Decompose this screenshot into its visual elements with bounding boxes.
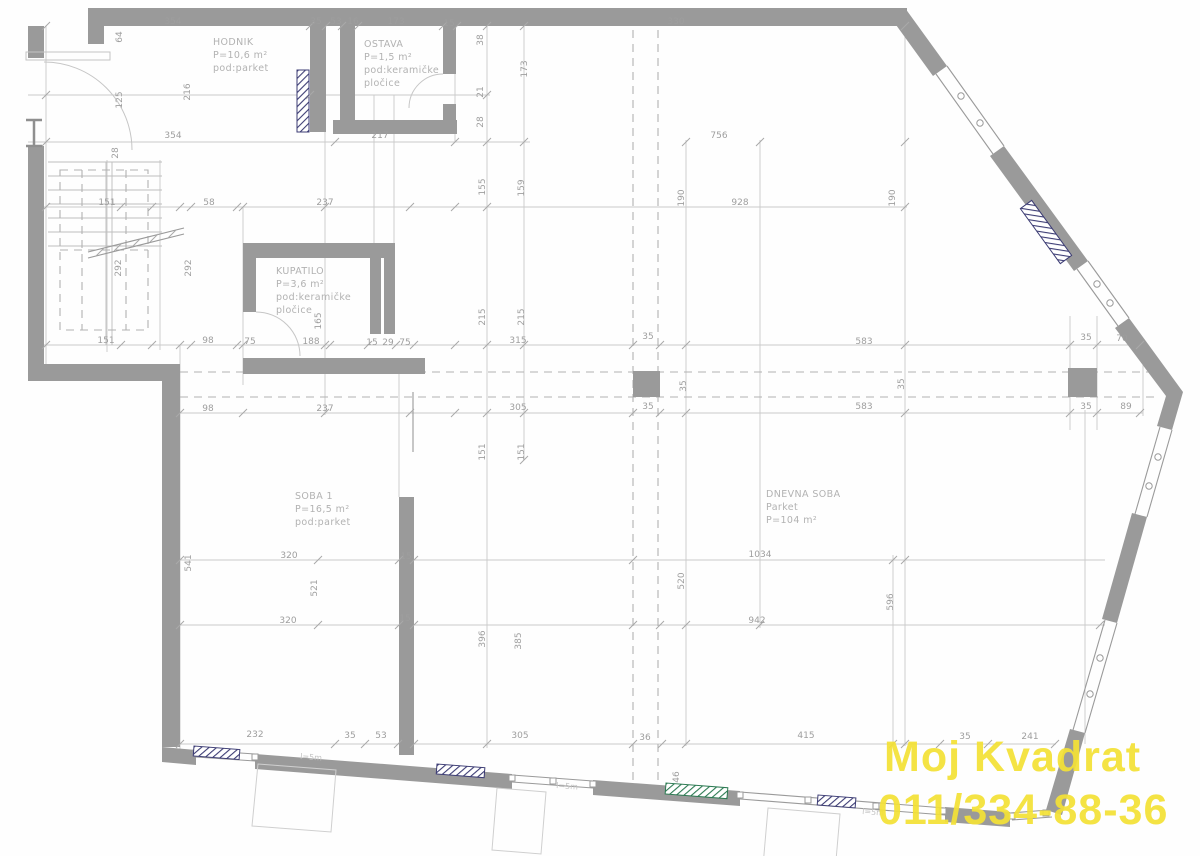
room-label-dnevna-soba: Parket [766, 502, 798, 513]
dimension-label: 58 [203, 198, 215, 208]
dimension-label: 165 [314, 312, 324, 329]
staircase [48, 162, 184, 345]
kupatilo-door-arc [256, 312, 300, 356]
dimension-label: 583 [855, 402, 872, 412]
dimension-label: 173 [520, 60, 530, 77]
dimension-label: 596 [886, 593, 896, 610]
ostava-door-arc [409, 74, 443, 108]
room-label-dnevna-soba: P=104 m² [766, 515, 817, 526]
dimension-label: 292 [114, 259, 124, 276]
dimension-label: 305 [511, 731, 528, 741]
dimension-ticks [42, 22, 1144, 748]
walls [28, 8, 1183, 827]
dimension-label: 188 [302, 337, 319, 347]
dimension-label: 98 [202, 404, 214, 414]
floor-plan: 3543553161731533064125216283542177563821… [0, 0, 1200, 856]
dimension-label: 241 [1021, 732, 1038, 742]
dimension-label: 232 [246, 730, 263, 740]
room-label-soba-1: SOBA 1 [295, 491, 333, 502]
dimension-label: 354 [164, 131, 181, 141]
dimension-label: 320 [279, 616, 296, 626]
room-label-ostava: pod:keramičke [364, 65, 439, 76]
dimension-label: 35 [1080, 333, 1091, 343]
dimension-label: 541 [184, 554, 194, 571]
room-label-ostava: P=1,5 m² [364, 52, 412, 63]
room-label-kupatilo: KUPATILO [276, 266, 324, 277]
window-handles [193, 93, 1161, 819]
extension-lines [28, 8, 1143, 756]
dimension-label: 64 [115, 31, 125, 43]
room-label-dnevna-soba: DNEVNA SOBA [766, 489, 841, 500]
dimension-label: 98 [202, 336, 214, 346]
dimension-label: 159 [517, 179, 527, 196]
room-label-hodnik: P=10,6 m² [213, 50, 268, 61]
dimension-label: 35 [1080, 402, 1091, 412]
dimension-label: 35 [642, 402, 653, 412]
dimension-label: 190 [677, 189, 687, 206]
dimension-label: 928 [731, 198, 748, 208]
dimension-label: 21 [476, 86, 486, 97]
dimension-label: 385 [514, 632, 524, 649]
dimension-label: 35 [959, 732, 970, 742]
room-label-hodnik: pod:parket [213, 63, 269, 74]
dimension-label: 415 [797, 731, 814, 741]
room-label-hodnik: HODNIK [213, 37, 254, 48]
dimension-label: 28 [476, 116, 486, 128]
dimension-label: 583 [855, 337, 872, 347]
dimension-label: 29 [382, 338, 394, 348]
dimension-label: 35 [642, 332, 653, 342]
room-label-kupatilo: P=3,6 m² [276, 279, 324, 290]
dimension-label: 396 [478, 630, 488, 647]
room-label-ostava: pločice [364, 78, 400, 89]
room-label-ostava: OSTAVA [364, 39, 403, 50]
room-label-soba-1: pod:parket [295, 517, 351, 528]
room-label-kupatilo: pločice [276, 305, 312, 316]
axis-lines [180, 30, 1160, 800]
dimension-label: 942 [748, 616, 765, 626]
room-label-kupatilo: pod:keramičke [276, 292, 351, 303]
dimension-label: 216 [183, 83, 193, 100]
radiator-hall [297, 70, 309, 132]
dimension-label: 520 [677, 572, 687, 589]
floor-plan-canvas: 3543553161731533064125216283542177563821… [0, 0, 1200, 856]
dimension-label: 35 [344, 731, 355, 741]
dimension-label: 38 [476, 34, 486, 46]
column-center [633, 371, 660, 397]
dimension-label: 15 [366, 338, 377, 348]
dimension-label: 151 [478, 443, 488, 460]
dimension-label: 75 [399, 338, 410, 348]
column-right [1068, 368, 1097, 397]
dimension-label: 215 [478, 308, 488, 325]
dimension-label: 89 [1120, 402, 1132, 412]
dimension-label: 190 [888, 189, 898, 206]
dimension-label: 35 [897, 378, 907, 389]
dimension-label: 53 [375, 731, 386, 741]
dimension-label: 46 [672, 771, 682, 783]
dimension-label: 756 [710, 131, 727, 141]
dimension-label: 35 [679, 380, 689, 391]
dimension-label: 292 [184, 259, 194, 276]
dimension-label: 521 [310, 579, 320, 596]
dimension-label: 215 [517, 308, 527, 325]
dimension-label: 155 [478, 178, 488, 195]
dimension-label: 320 [280, 551, 297, 561]
dimension-label: 28 [111, 147, 121, 159]
room-label-soba-1: P=16,5 m² [295, 504, 350, 515]
entrance-door-arc [44, 62, 132, 150]
dimension-label: 36 [639, 733, 651, 743]
